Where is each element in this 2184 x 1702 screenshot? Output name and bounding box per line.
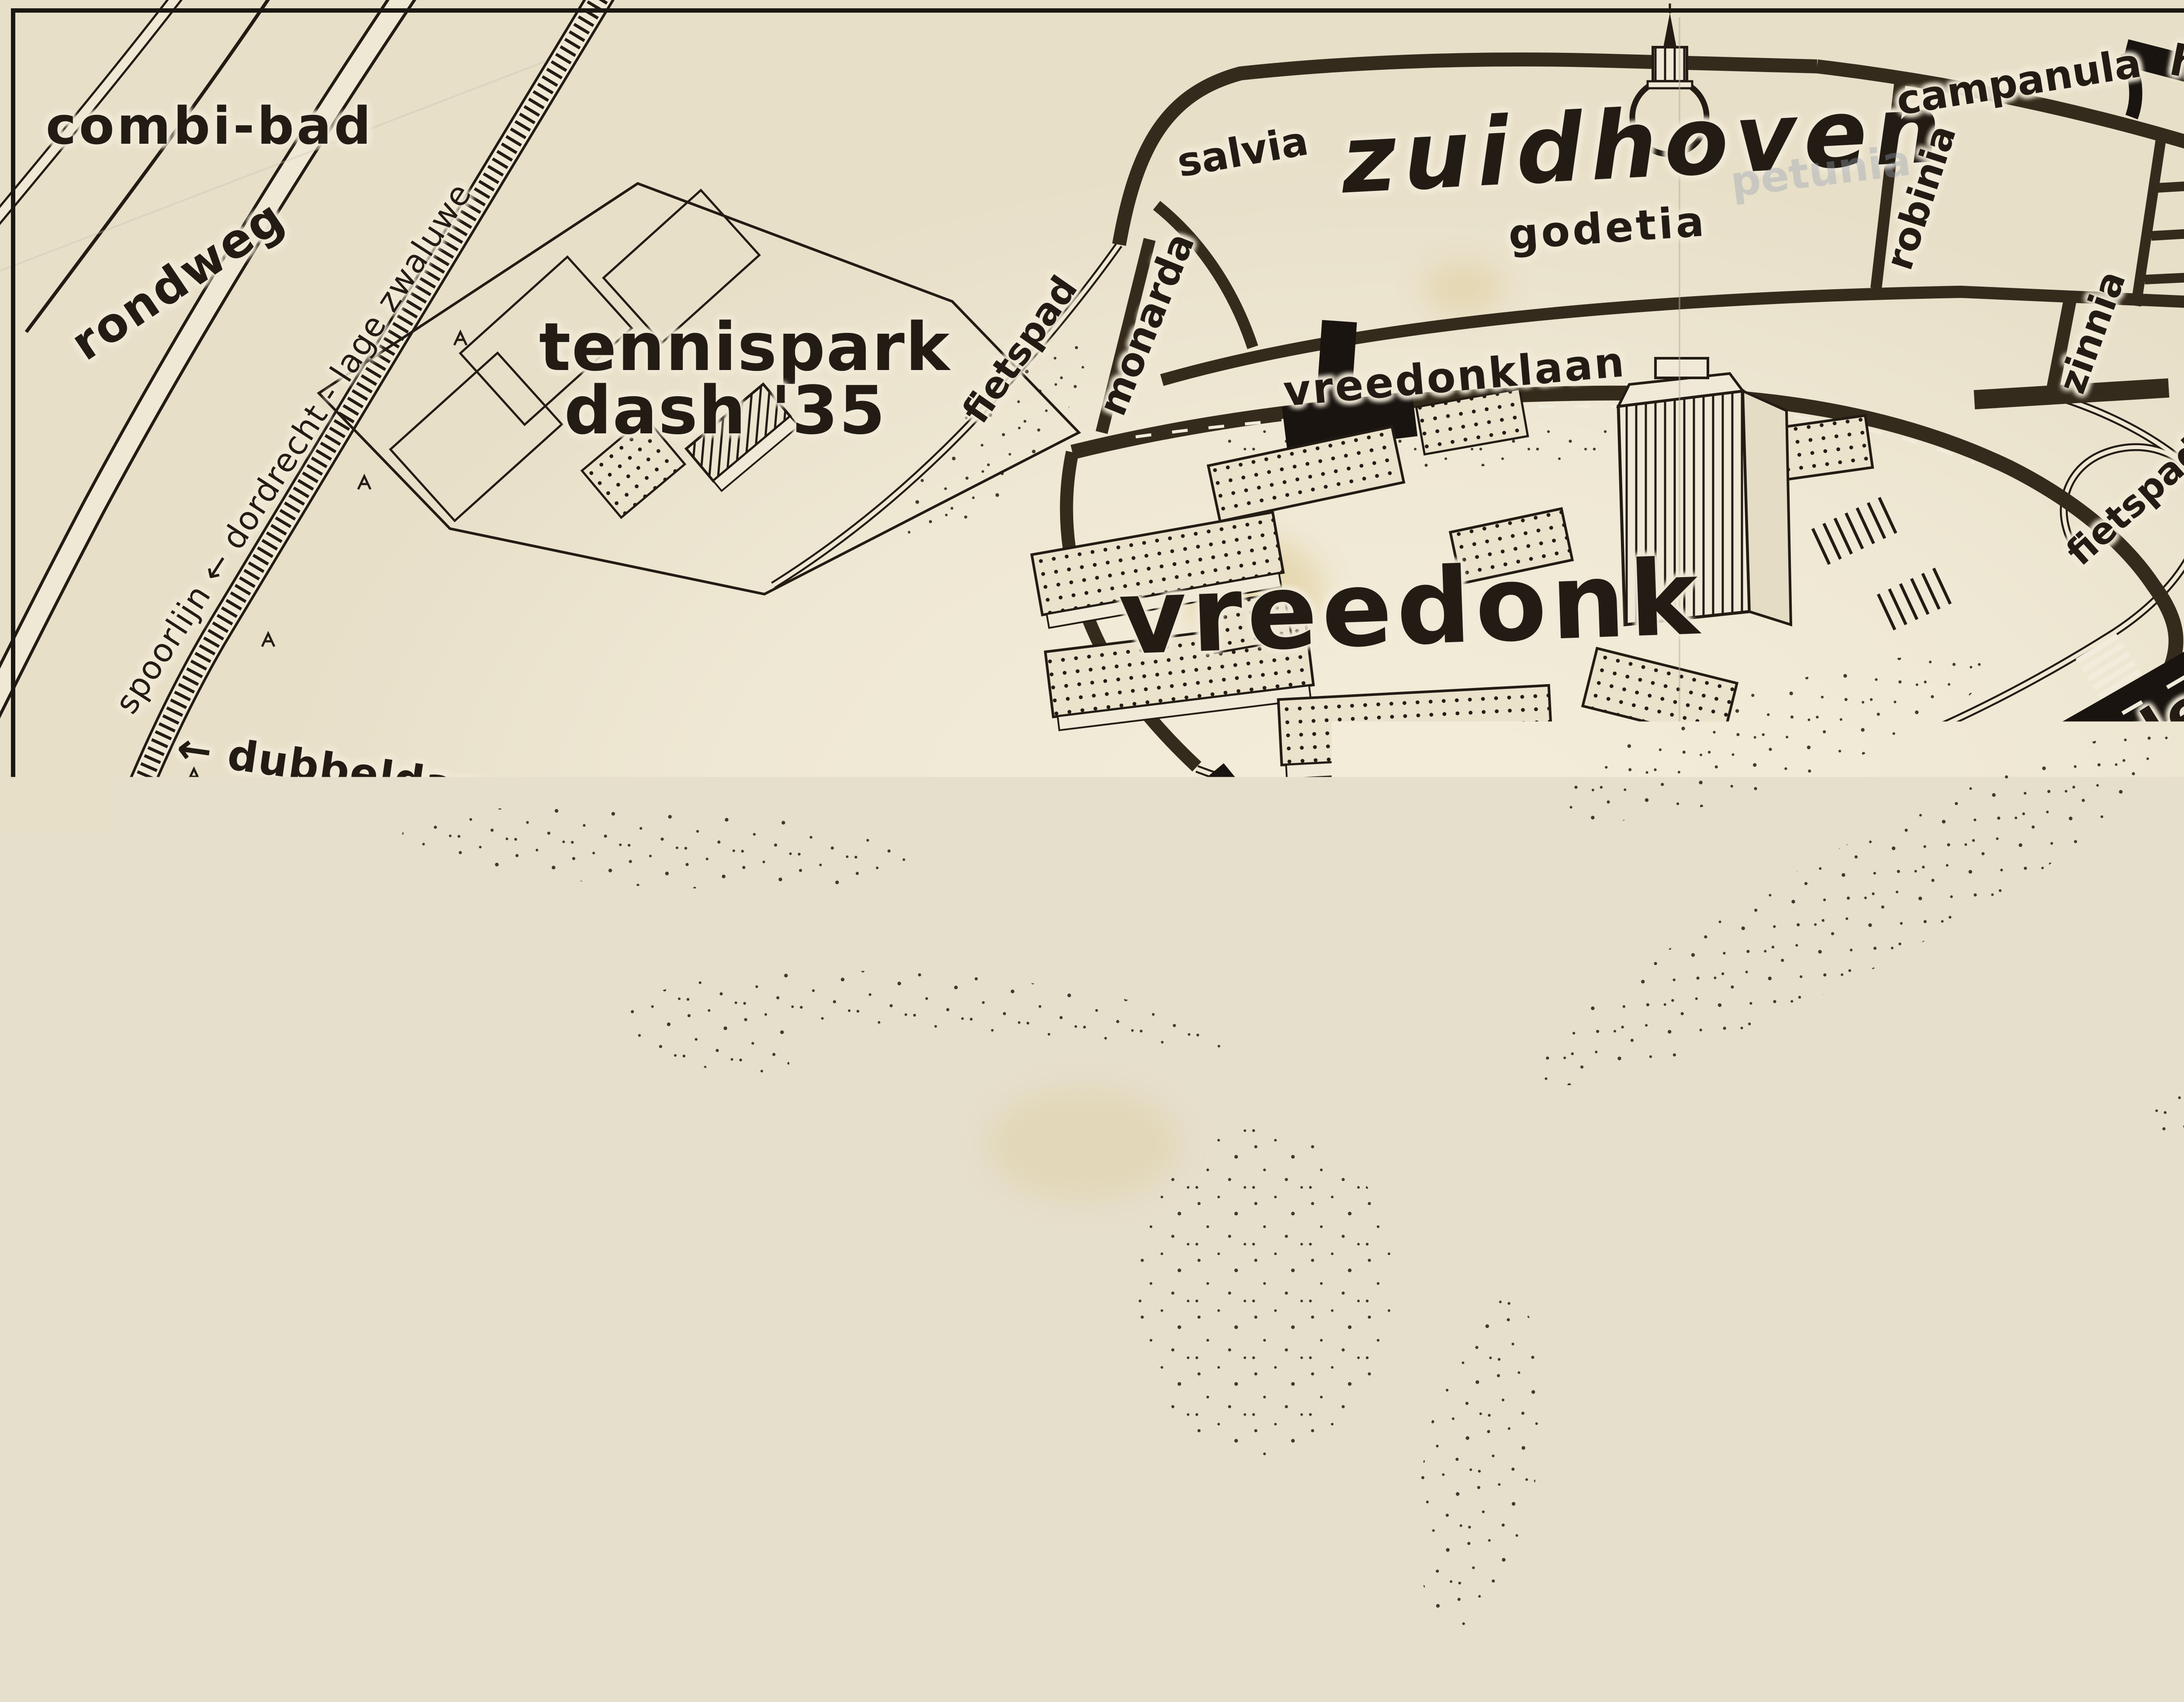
junction-blob: [1138, 926, 1589, 1172]
map-canvas: combi-bad rondweg spoorlijn ← dordrecht …: [0, 0, 2184, 1702]
copyright-label: COPYRIGHT: [66, 1640, 258, 1664]
label-dependance-line3: academie: [2046, 1280, 2184, 1334]
label-dependance-line1: dependance: [1998, 1164, 2184, 1218]
map-drawing: [0, 0, 2184, 1702]
label-vreedonk: vreedonk: [1117, 546, 1704, 671]
label-combi-bad: combi-bad: [46, 100, 373, 152]
label-godetia: godetia: [1507, 200, 1708, 256]
railway-line: [0, 0, 609, 1293]
label-ducdalf: ducdalf: [581, 1407, 888, 1476]
academie-buildings: [1682, 1087, 2107, 1515]
label-dependance-line2: gem.pedagogische: [1797, 1221, 2184, 1280]
label-tennispark-line1: tennispark: [539, 314, 950, 381]
label-tennispark-line2: dash '35: [564, 377, 886, 444]
sheet-edge: [0, 1690, 2184, 1692]
